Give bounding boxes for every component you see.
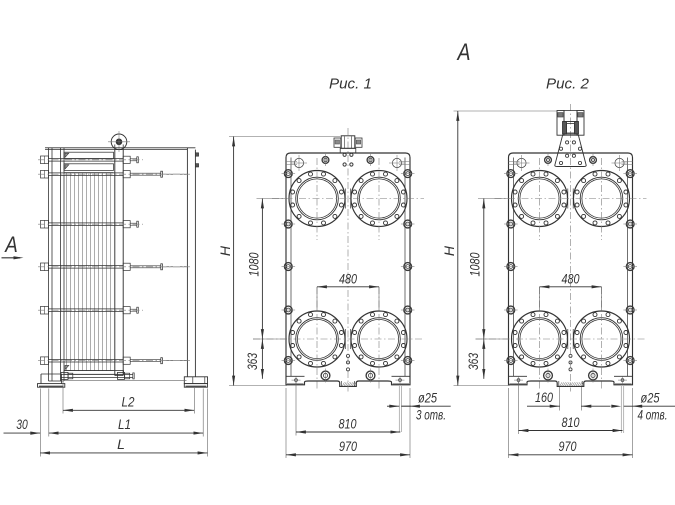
svg-text:L1: L1: [118, 416, 131, 432]
svg-text:ø25: ø25: [641, 391, 660, 406]
svg-text:160: 160: [535, 390, 553, 405]
svg-text:L: L: [117, 436, 125, 452]
svg-text:3 отв.: 3 отв.: [416, 407, 446, 422]
svg-text:30: 30: [16, 416, 28, 432]
svg-text:1080: 1080: [246, 252, 261, 276]
svg-text:1080: 1080: [468, 252, 483, 276]
svg-text:А: А: [456, 39, 471, 66]
svg-text:L2: L2: [122, 393, 135, 409]
svg-text:363: 363: [466, 353, 481, 370]
svg-text:810: 810: [339, 417, 357, 432]
svg-text:Рис. 1: Рис. 1: [329, 76, 372, 93]
svg-text:810: 810: [562, 415, 580, 430]
svg-text:ø25: ø25: [418, 391, 437, 406]
svg-text:480: 480: [562, 271, 580, 286]
svg-text:А: А: [4, 232, 18, 257]
svg-text:H: H: [441, 245, 457, 256]
svg-text:480: 480: [339, 271, 357, 286]
svg-text:970: 970: [559, 439, 577, 454]
svg-text:H: H: [217, 245, 233, 256]
svg-text:4 отв.: 4 отв.: [638, 407, 668, 422]
svg-text:363: 363: [245, 353, 260, 370]
svg-text:Рис. 2: Рис. 2: [546, 76, 590, 93]
svg-text:970: 970: [339, 439, 357, 454]
